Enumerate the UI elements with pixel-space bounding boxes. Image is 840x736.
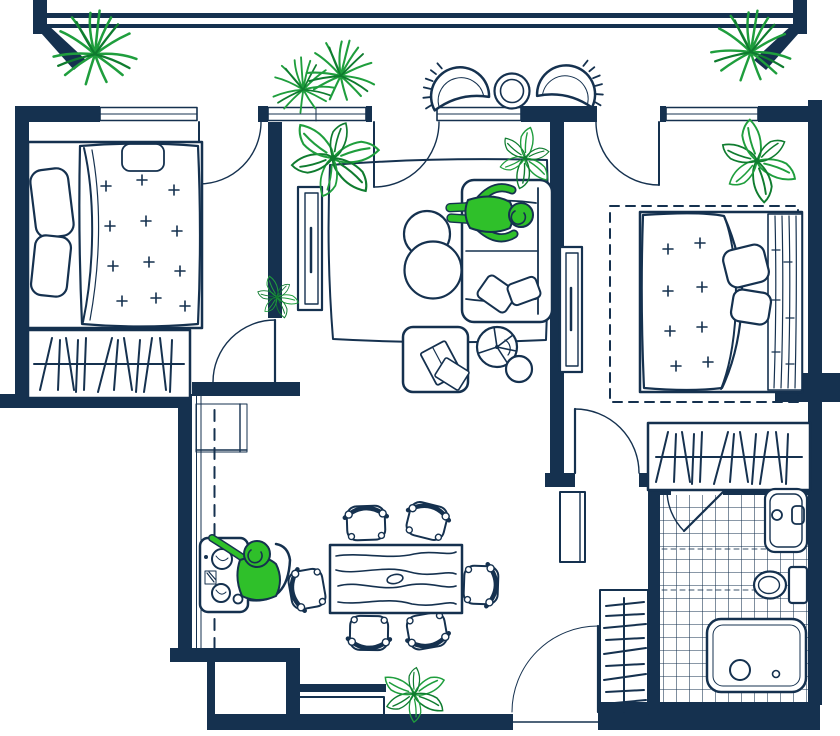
pillow bbox=[29, 167, 75, 239]
floor-plan: Two-bedroom apartment floor plan with ba… bbox=[0, 0, 840, 736]
wicker-chair-left bbox=[416, 53, 490, 112]
dining-chair bbox=[344, 505, 387, 540]
bedroom-right bbox=[560, 111, 810, 490]
balcony-railing bbox=[36, 13, 804, 18]
tv-console-bedroom-right bbox=[560, 247, 582, 372]
coffee-table bbox=[403, 327, 470, 392]
folded-throw bbox=[122, 144, 164, 171]
balcony-door-bedroom-left bbox=[199, 122, 261, 184]
coat-closet bbox=[600, 590, 648, 714]
pillow bbox=[30, 234, 72, 297]
bottom-wall bbox=[207, 714, 513, 730]
living-room bbox=[254, 104, 567, 392]
bathtub bbox=[707, 619, 806, 692]
window-bedroom-right bbox=[666, 108, 758, 121]
floor-plan-page: Two-bedroom apartment floor plan with ba… bbox=[0, 0, 840, 736]
storage-cabinet bbox=[196, 404, 247, 452]
partition bbox=[197, 396, 202, 650]
dining-chair bbox=[403, 611, 450, 652]
bed-left bbox=[28, 142, 202, 328]
dining-chair bbox=[287, 565, 328, 612]
balcony-door-bedroom-right bbox=[596, 122, 659, 185]
knit-throw bbox=[768, 214, 802, 390]
hall-cabinet bbox=[560, 492, 585, 562]
wardrobe-right bbox=[648, 423, 810, 490]
bedroom-right-plant bbox=[708, 111, 810, 212]
door-bedroom-right bbox=[575, 409, 639, 473]
wash-basin bbox=[765, 489, 807, 552]
window-living-1 bbox=[268, 108, 366, 122]
side-stool bbox=[506, 356, 532, 382]
tv-console-living bbox=[298, 187, 322, 310]
pillow bbox=[730, 288, 773, 326]
right-wall bbox=[808, 100, 822, 705]
dining-area bbox=[287, 499, 499, 651]
work-nook bbox=[196, 396, 290, 650]
dining-chair bbox=[403, 499, 452, 542]
round-side-table bbox=[495, 74, 530, 109]
windows bbox=[100, 108, 758, 122]
bathroom bbox=[660, 489, 808, 702]
window-living-2 bbox=[437, 108, 521, 121]
dining-chair bbox=[463, 563, 498, 606]
balcony-door-living bbox=[374, 122, 439, 187]
dining-chair bbox=[348, 616, 391, 651]
door-entry bbox=[512, 626, 598, 722]
bed-right bbox=[640, 212, 802, 392]
pouf-large bbox=[405, 242, 462, 299]
wardrobe-left bbox=[28, 330, 190, 398]
bedroom-left bbox=[28, 142, 202, 398]
door-bedroom-left bbox=[213, 320, 275, 382]
window-bedroom-left bbox=[100, 108, 197, 121]
wall-bathroom-left bbox=[648, 483, 660, 730]
wicker-chair-right bbox=[536, 52, 609, 110]
dining-table bbox=[330, 545, 462, 613]
